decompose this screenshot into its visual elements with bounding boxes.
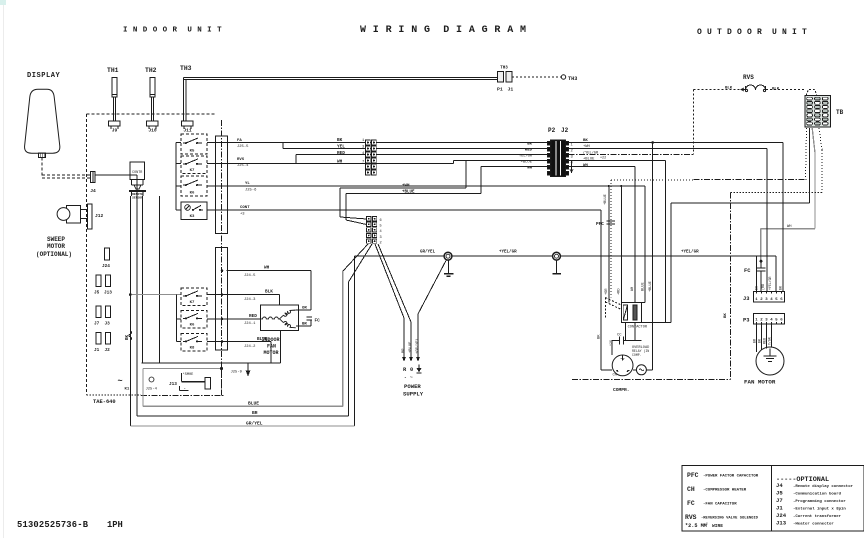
svg-text:BLUE: BLUE [248, 401, 259, 407]
svg-text:(YEL/GR: (YEL/GR [583, 150, 599, 155]
svg-text:TH3: TH3 [500, 67, 508, 71]
svg-text:I N D O O R U N I T: I N D O O R U N I T [123, 27, 222, 35]
svg-text:+WH: +WH [583, 145, 590, 149]
svg-text:K3: K3 [190, 215, 195, 219]
svg-text:GR/YEL: GR/YEL [246, 420, 263, 426]
svg-text:J24: J24 [102, 264, 110, 269]
svg-text:4: 4 [380, 230, 382, 234]
svg-text:TH3: TH3 [180, 65, 192, 72]
svg-text:+BLUE: +BLUE [402, 191, 415, 195]
svg-text:K7: K7 [190, 301, 195, 305]
svg-text:BK: BK [527, 143, 532, 147]
svg-text:BLK: BLK [265, 290, 273, 295]
svg-text:-COMPRESSOR HEATER: -COMPRESSOR HEATER [703, 489, 747, 493]
svg-text:WH: WH [583, 164, 588, 168]
svg-text:-Heater connector: -Heater connector [793, 522, 834, 527]
svg-text:-: - [404, 376, 407, 381]
svg-text:BLUE: BLUE [641, 282, 645, 291]
svg-text:J24-3: J24-3 [244, 298, 256, 302]
svg-text:-External input x 8pin: -External input x 8pin [793, 507, 846, 512]
svg-text:BR: BR [302, 322, 307, 326]
svg-text:K6: K6 [190, 192, 195, 196]
svg-text:BK: BK [126, 334, 130, 340]
svg-text:J11: J11 [183, 128, 192, 134]
svg-text:FC: FC [315, 318, 321, 323]
svg-text:RVS: RVS [237, 158, 245, 162]
svg-text:WH: WH [527, 167, 532, 171]
svg-text:J10: J10 [148, 128, 157, 134]
svg-text:J25-6: J25-6 [245, 189, 257, 193]
svg-text:J25-4: J25-4 [146, 388, 158, 392]
svg-text:+OR: +OR [605, 288, 609, 295]
svg-text:RVS: RVS [743, 74, 754, 81]
svg-text:K5: K5 [190, 150, 195, 154]
svg-text:-Current transformer: -Current transformer [793, 514, 842, 519]
svg-text:-REVERSING VALVE SOLENOID: -REVERSING VALVE SOLENOID [701, 517, 759, 521]
svg-text:BK: BK [724, 313, 728, 318]
svg-text:J25-5: J25-5 [237, 145, 249, 149]
svg-text:RVS: RVS [685, 514, 697, 521]
svg-text:(OPTIONAL): (OPTIONAL) [36, 251, 72, 258]
svg-text:P2: P2 [548, 127, 556, 134]
svg-text:P3: P3 [743, 318, 749, 324]
svg-text:CONTR: CONTR [132, 171, 142, 175]
svg-text:OR: OR [302, 307, 307, 311]
svg-text:YEL: YEL [337, 145, 345, 150]
svg-text:-Remote display connector: -Remote display connector [793, 484, 854, 489]
svg-text:TAE-640: TAE-640 [93, 399, 116, 405]
svg-text:BR: BR [402, 348, 406, 353]
svg-text:51302525736-B: 51302525736-B [17, 520, 89, 530]
svg-text:PFC: PFC [687, 472, 699, 479]
svg-text:+BLUE: +BLUE [583, 158, 595, 162]
svg-text:J24: J24 [776, 512, 787, 519]
svg-text:DISPLAY: DISPLAY [27, 72, 61, 80]
svg-text:2: 2 [380, 241, 382, 245]
svg-text:SENSOR: SENSOR [132, 196, 143, 199]
svg-text:J3: J3 [105, 322, 111, 327]
svg-text:-----OPTIONAL: -----OPTIONAL [776, 476, 829, 484]
svg-text:+WH: +WH [402, 184, 410, 188]
svg-text:+3: +3 [240, 213, 245, 217]
svg-text:BK: BK [583, 139, 588, 143]
svg-text:+YEL/GR: +YEL/GR [768, 277, 772, 290]
svg-text:SWEEP: SWEEP [47, 236, 65, 243]
svg-text:W I R I N G D I A G R A M: W I R I N G D I A G R A M [360, 25, 526, 36]
svg-text:O U T D O O R U N I T: O U T D O O R U N I T [697, 28, 807, 37]
svg-text:-FAN CAPACITOR: -FAN CAPACITOR [703, 503, 737, 507]
svg-text:*25: *25 [609, 340, 614, 346]
svg-text:K7: K7 [190, 169, 195, 173]
svg-text:-Programming connector: -Programming connector [793, 499, 846, 504]
svg-text:J3: J3 [743, 296, 749, 302]
svg-text:-Communication board: -Communication board [793, 492, 842, 497]
svg-text:FA: FA [237, 139, 242, 143]
svg-text:2: 2 [706, 523, 708, 526]
svg-text:J2: J2 [561, 127, 569, 134]
svg-text:P1: P1 [497, 87, 503, 93]
svg-text:TB: TB [836, 109, 844, 116]
svg-text:+YEL/GR: +YEL/GR [499, 250, 517, 255]
svg-text:-POWER FACTOR CAPACITOR: -POWER FACTOR CAPACITOR [703, 475, 759, 479]
svg-text:+BLUE: +BLUE [409, 341, 413, 353]
svg-text:-: - [184, 388, 186, 392]
svg-text:WIRE: WIRE [712, 523, 723, 529]
svg-text:J5: J5 [776, 490, 783, 497]
svg-text:K6: K6 [190, 324, 195, 328]
svg-text:+RD: +RD [618, 289, 622, 295]
svg-text:WH: WH [631, 287, 635, 291]
svg-text:J24-1: J24-1 [244, 322, 256, 326]
svg-text:*2.5 MM: *2.5 MM [685, 523, 707, 529]
svg-text:CH: CH [613, 374, 617, 378]
svg-text:TH1: TH1 [107, 67, 119, 74]
svg-text:J1: J1 [508, 87, 514, 93]
svg-text:J25-4: J25-4 [237, 164, 249, 168]
svg-text:+BLUE: +BLUE [604, 194, 608, 205]
svg-text:COMPR.: COMPR. [613, 387, 630, 393]
svg-text:~: ~ [410, 376, 413, 381]
svg-text:J7: J7 [94, 322, 100, 327]
svg-text:+BLUE: +BLUE [649, 281, 653, 292]
svg-text:COMP.: COMP. [632, 353, 642, 357]
svg-text:+BLUE: +BLUE [521, 161, 533, 165]
svg-text:BR: BR [252, 410, 258, 416]
svg-text:FAN: FAN [267, 344, 276, 350]
svg-text:+GR/YEL: +GR/YEL [415, 337, 420, 354]
svg-text:J5: J5 [94, 291, 100, 296]
svg-text:J24-2: J24-2 [244, 345, 256, 349]
svg-text:WH: WH [337, 160, 343, 165]
svg-text:RED: RED [337, 151, 345, 156]
svg-text:MOTOR: MOTOR [47, 243, 65, 250]
svg-text:FC: FC [687, 500, 695, 507]
svg-text:J2: J2 [105, 348, 111, 353]
svg-text:BK: BK [337, 138, 343, 143]
svg-text:J7: J7 [776, 497, 783, 504]
svg-text:GR/YEL: GR/YEL [420, 250, 436, 255]
svg-text:7: 7 [362, 161, 364, 165]
svg-text:FAN MOTOR: FAN MOTOR [744, 379, 776, 386]
svg-text:YEL/GR: YEL/GR [519, 154, 533, 159]
svg-text:BK: BK [598, 334, 602, 339]
svg-text:WH: WH [264, 266, 270, 271]
svg-text:YL: YL [245, 182, 250, 186]
svg-text:PFC: PFC [596, 222, 604, 227]
svg-text:J1: J1 [776, 505, 783, 512]
svg-text:MOTOR: MOTOR [264, 350, 279, 356]
svg-text:(RD: (RD [761, 284, 766, 290]
svg-text:J4: J4 [90, 188, 96, 194]
svg-text:3: 3 [380, 236, 382, 240]
svg-text:J12: J12 [95, 213, 104, 219]
svg-text:K1: K1 [125, 388, 130, 392]
svg-text:J1: J1 [94, 348, 100, 353]
svg-text:1PH: 1PH [107, 520, 123, 530]
svg-text:INDOOR: INDOOR [262, 337, 280, 343]
svg-text:RED: RED [525, 149, 533, 153]
svg-text:J13: J13 [776, 520, 787, 527]
svg-text:K8: K8 [190, 347, 195, 351]
svg-text:+YEL/GR: +YEL/GR [681, 250, 699, 255]
svg-text:SUPPLY: SUPPLY [403, 391, 424, 398]
svg-text:CONTACTOR: CONTACTOR [628, 326, 648, 330]
svg-text:J24-5: J24-5 [244, 274, 256, 278]
svg-text:6: 6 [380, 219, 382, 223]
svg-text:J13: J13 [169, 382, 177, 387]
svg-text:TH3: TH3 [568, 76, 577, 82]
svg-text:CONT: CONT [240, 206, 250, 210]
svg-text:J9: J9 [112, 128, 118, 134]
svg-text:FC: FC [744, 268, 751, 274]
svg-text:WH: WH [787, 225, 792, 229]
svg-text:J13: J13 [104, 291, 112, 296]
svg-text:0: 0 [410, 367, 413, 373]
svg-text:Y/GR: Y/GR [768, 337, 772, 345]
svg-text:J25-9: J25-9 [231, 371, 243, 375]
svg-text:CH: CH [687, 486, 695, 493]
svg-text:J4: J4 [776, 482, 783, 489]
svg-text:RED: RED [249, 314, 257, 319]
svg-text:5: 5 [380, 225, 382, 229]
svg-text:~: ~ [118, 376, 123, 386]
svg-text:POWER: POWER [404, 383, 421, 390]
svg-text:TH2: TH2 [145, 67, 157, 74]
svg-text:BR: BR [754, 339, 758, 343]
svg-text:*SM0E: *SM0E [183, 372, 194, 377]
